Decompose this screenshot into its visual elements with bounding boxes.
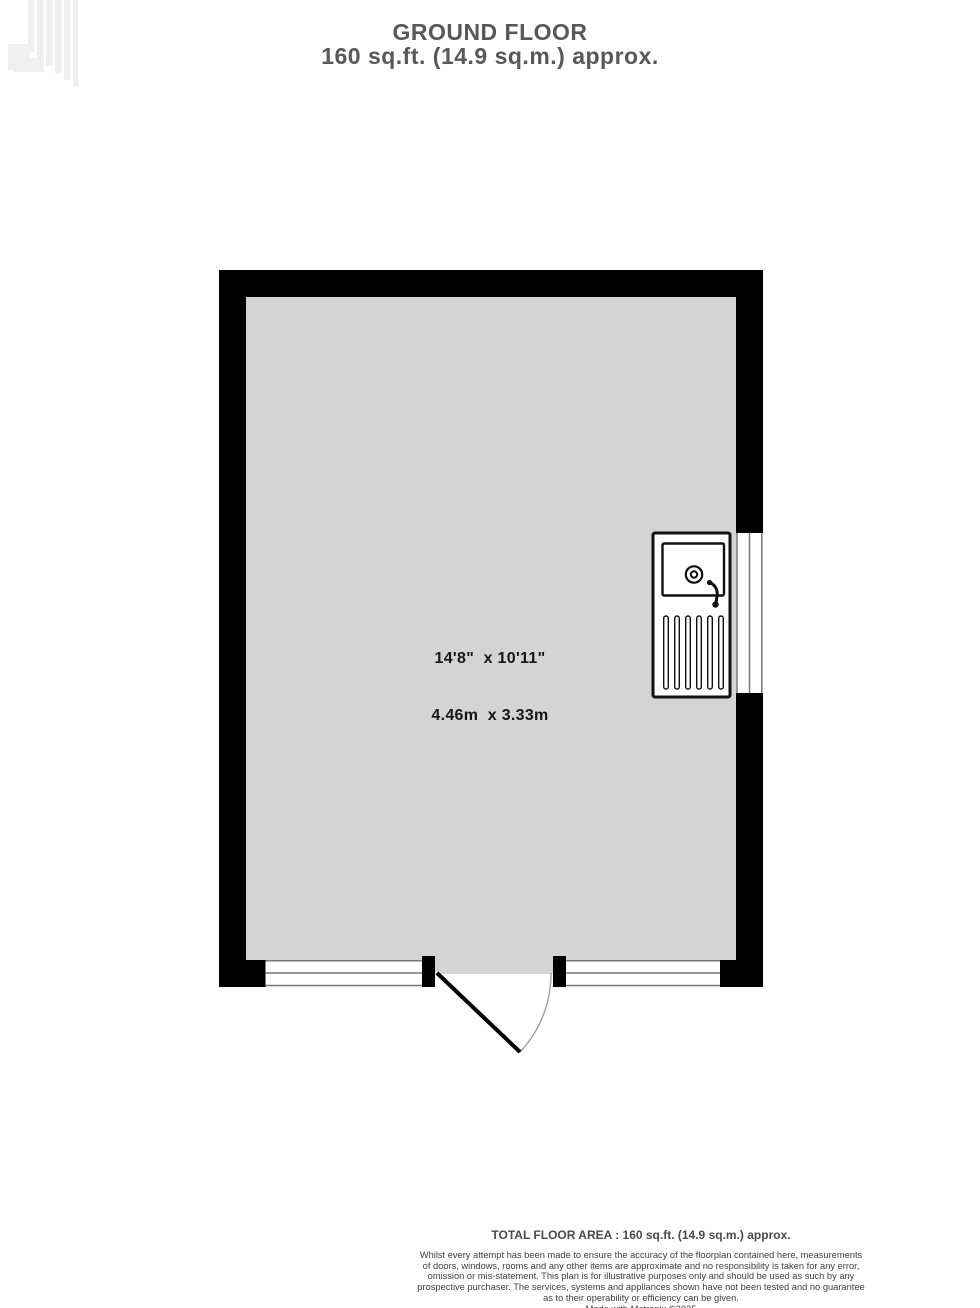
disclaimer-line: omission or mis-statement. This plan is … <box>341 1271 941 1282</box>
room-dimensions-imperial: 14'8" x 10'11" <box>0 649 980 668</box>
disclaimer-line: Whilst every attempt has been made to en… <box>341 1250 941 1261</box>
room-dimensions-label: 14'8" x 10'11" 4.46m x 3.33m <box>0 611 980 763</box>
footer: TOTAL FLOOR AREA : 160 sq.ft. (14.9 sq.m… <box>341 1229 941 1308</box>
disclaimer-line: of doors, windows, rooms and any other i… <box>341 1261 941 1272</box>
window-bottom-right <box>553 956 720 987</box>
floorplan-page: GROUND FLOOR 160 sq.ft. (14.9 sq.m.) app… <box>0 0 980 1308</box>
room-dimensions-metric: 4.46m x 3.33m <box>0 706 980 725</box>
metropix-credit: Made with Metropix ©2025 <box>341 1304 941 1308</box>
floor-title: GROUND FLOOR <box>0 20 980 44</box>
door-opening <box>435 957 553 1052</box>
window-end-cap <box>422 956 435 987</box>
plan-title-block: GROUND FLOOR 160 sq.ft. (14.9 sq.m.) app… <box>0 20 980 68</box>
disclaimer-line: as to their operability or efficiency ca… <box>341 1293 941 1304</box>
window-bottom-left <box>266 956 436 987</box>
window-end-cap <box>553 956 566 987</box>
floor-area-subtitle: 160 sq.ft. (14.9 sq.m.) approx. <box>0 44 980 68</box>
disclaimer-line: prospective purchaser. The services, sys… <box>341 1282 941 1293</box>
total-floor-area: TOTAL FLOOR AREA : 160 sq.ft. (14.9 sq.m… <box>341 1229 941 1242</box>
